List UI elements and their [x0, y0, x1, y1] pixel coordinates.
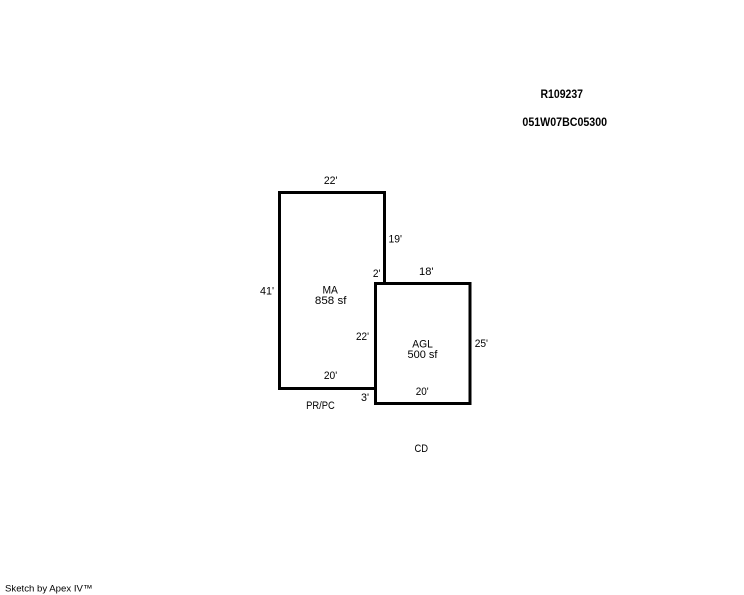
svg-text:20': 20': [324, 370, 337, 382]
svg-text:18': 18': [419, 266, 434, 278]
svg-text:500 sf: 500 sf: [408, 349, 439, 361]
svg-text:41': 41': [260, 286, 274, 298]
svg-text:2': 2': [373, 268, 381, 280]
svg-text:051W07BC05300: 051W07BC05300: [522, 115, 607, 129]
svg-text:Sketch by Apex IV™: Sketch by Apex IV™: [5, 584, 93, 595]
svg-text:PR/PC: PR/PC: [306, 400, 335, 412]
svg-text:19': 19': [389, 233, 403, 245]
svg-text:CD: CD: [415, 443, 429, 455]
svg-text:858 sf: 858 sf: [315, 295, 347, 307]
svg-text:3': 3': [361, 392, 369, 404]
svg-text:R109237: R109237: [541, 87, 584, 101]
svg-text:25': 25': [475, 338, 488, 350]
svg-text:22': 22': [356, 331, 369, 343]
svg-text:22': 22': [324, 175, 338, 187]
svg-text:20': 20': [416, 386, 429, 398]
